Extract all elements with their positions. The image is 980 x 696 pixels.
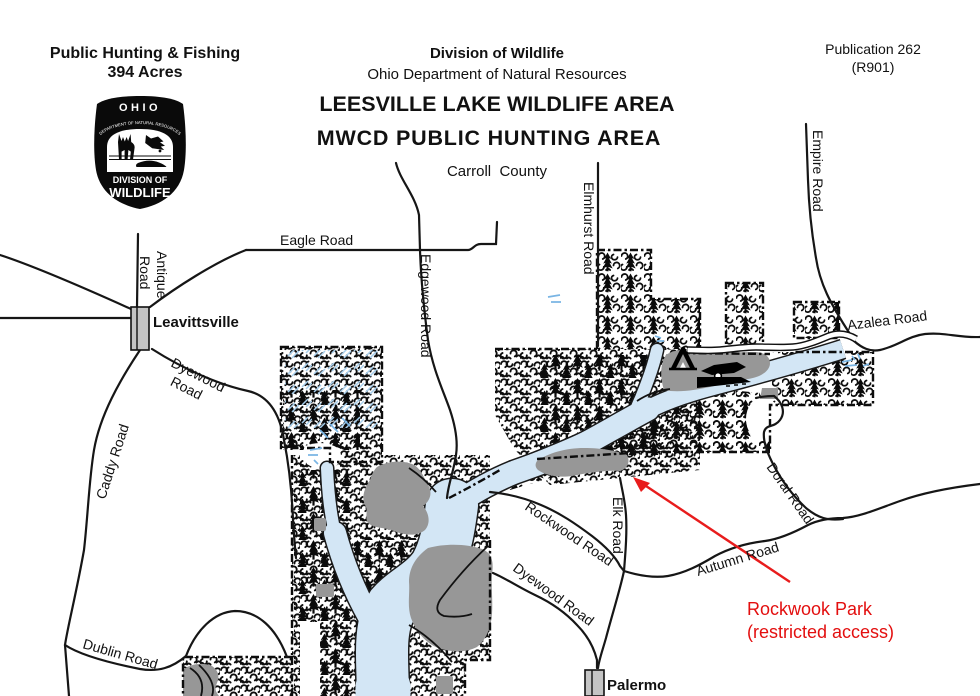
svg-text:Ohio Department of Natural Res: Ohio Department of Natural Resources xyxy=(367,66,626,83)
svg-text:Azalea Road: Azalea Road xyxy=(846,307,928,333)
svg-text:Dublin Road: Dublin Road xyxy=(81,636,159,673)
svg-text:Publication 262: Publication 262 xyxy=(825,41,921,57)
svg-text:DIVISION OF: DIVISION OF xyxy=(113,175,168,185)
svg-text:Leavittsville: Leavittsville xyxy=(153,314,239,331)
svg-text:DyewoodRoad: DyewoodRoad xyxy=(161,354,228,410)
svg-text:Elk Road: Elk Road xyxy=(610,497,626,554)
svg-text:Public Hunting & Fishing: Public Hunting & Fishing xyxy=(50,45,240,62)
svg-text:AntiqueRoad: AntiqueRoad xyxy=(137,251,170,299)
svg-text:Elmhurst Road: Elmhurst Road xyxy=(581,182,597,275)
svg-text:Division of Wildlife: Division of Wildlife xyxy=(430,45,564,62)
svg-text:(R901): (R901) xyxy=(852,59,895,75)
svg-text:394 Acres: 394 Acres xyxy=(107,64,182,81)
svg-text:Carroll County: Carroll County xyxy=(447,163,548,180)
svg-text:(restricted access): (restricted access) xyxy=(747,622,894,642)
svg-text:Doral Road: Doral Road xyxy=(764,460,818,527)
svg-text:WILDLIFE: WILDLIFE xyxy=(109,185,171,200)
svg-text:Palermo: Palermo xyxy=(607,677,666,694)
svg-text:Eagle Road: Eagle Road xyxy=(280,232,353,248)
svg-text:Rockwood Road: Rockwood Road xyxy=(522,498,616,569)
svg-text:MWCD PUBLIC HUNTING AREA: MWCD PUBLIC HUNTING AREA xyxy=(317,126,661,150)
svg-text:Autumn Road: Autumn Road xyxy=(694,539,781,579)
svg-text:Dyewood Road: Dyewood Road xyxy=(510,559,597,628)
svg-text:Rockwook Park: Rockwook Park xyxy=(747,599,873,619)
svg-text:Empire Road: Empire Road xyxy=(810,130,826,212)
svg-text:Edgewood Road: Edgewood Road xyxy=(418,254,434,358)
svg-text:OHIO: OHIO xyxy=(119,102,161,114)
svg-text:LEESVILLE LAKE WILDLIFE AREA: LEESVILLE LAKE WILDLIFE AREA xyxy=(319,92,674,116)
